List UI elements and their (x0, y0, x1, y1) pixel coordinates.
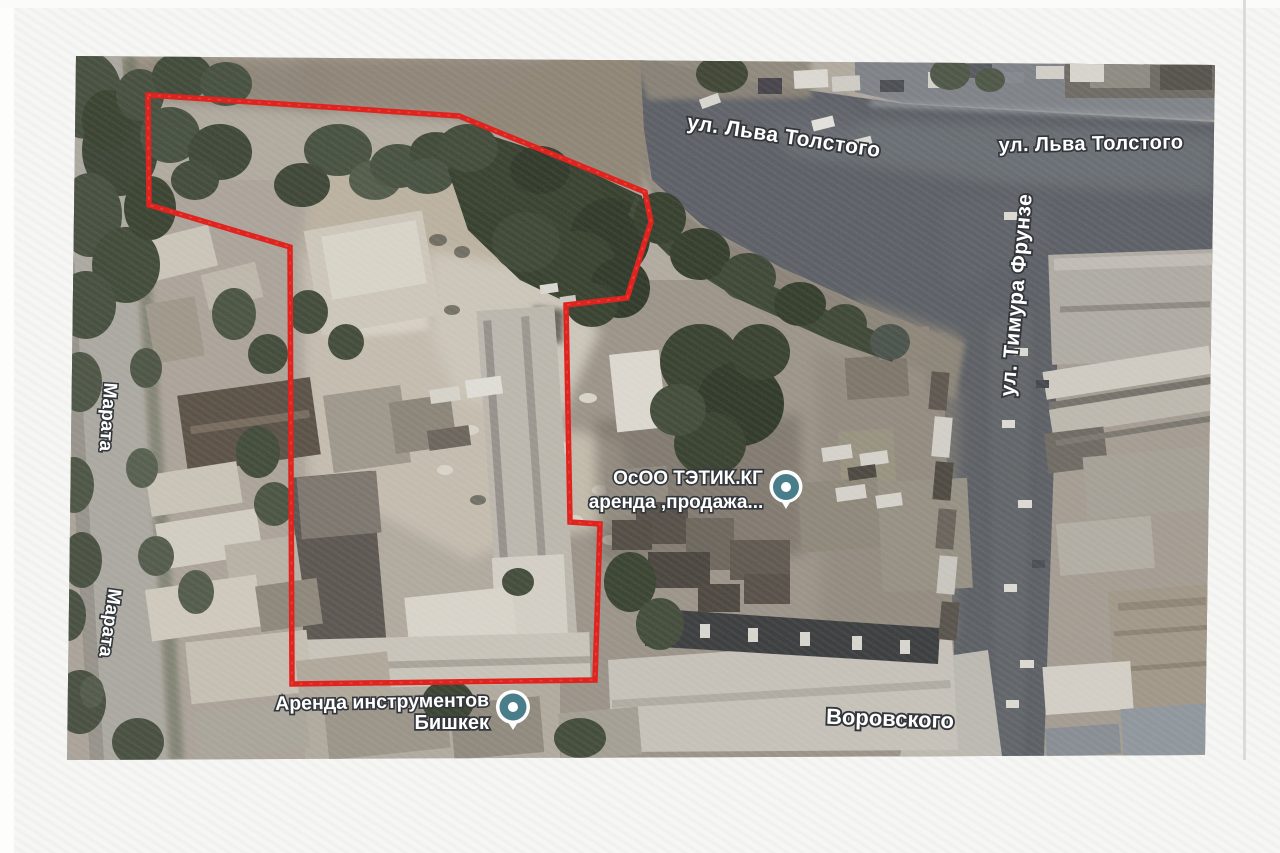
svg-text:аренда ,продажа...: аренда ,продажа... (589, 492, 764, 513)
svg-text:Воровского: Воровского (826, 704, 955, 733)
svg-text:ОсОО ТЭТИК.КГ: ОсОО ТЭТИК.КГ (613, 468, 763, 489)
svg-text:ул. Льва Толстого: ул. Льва Толстого (998, 131, 1183, 156)
svg-text:Бишкек: Бишкек (415, 712, 490, 734)
